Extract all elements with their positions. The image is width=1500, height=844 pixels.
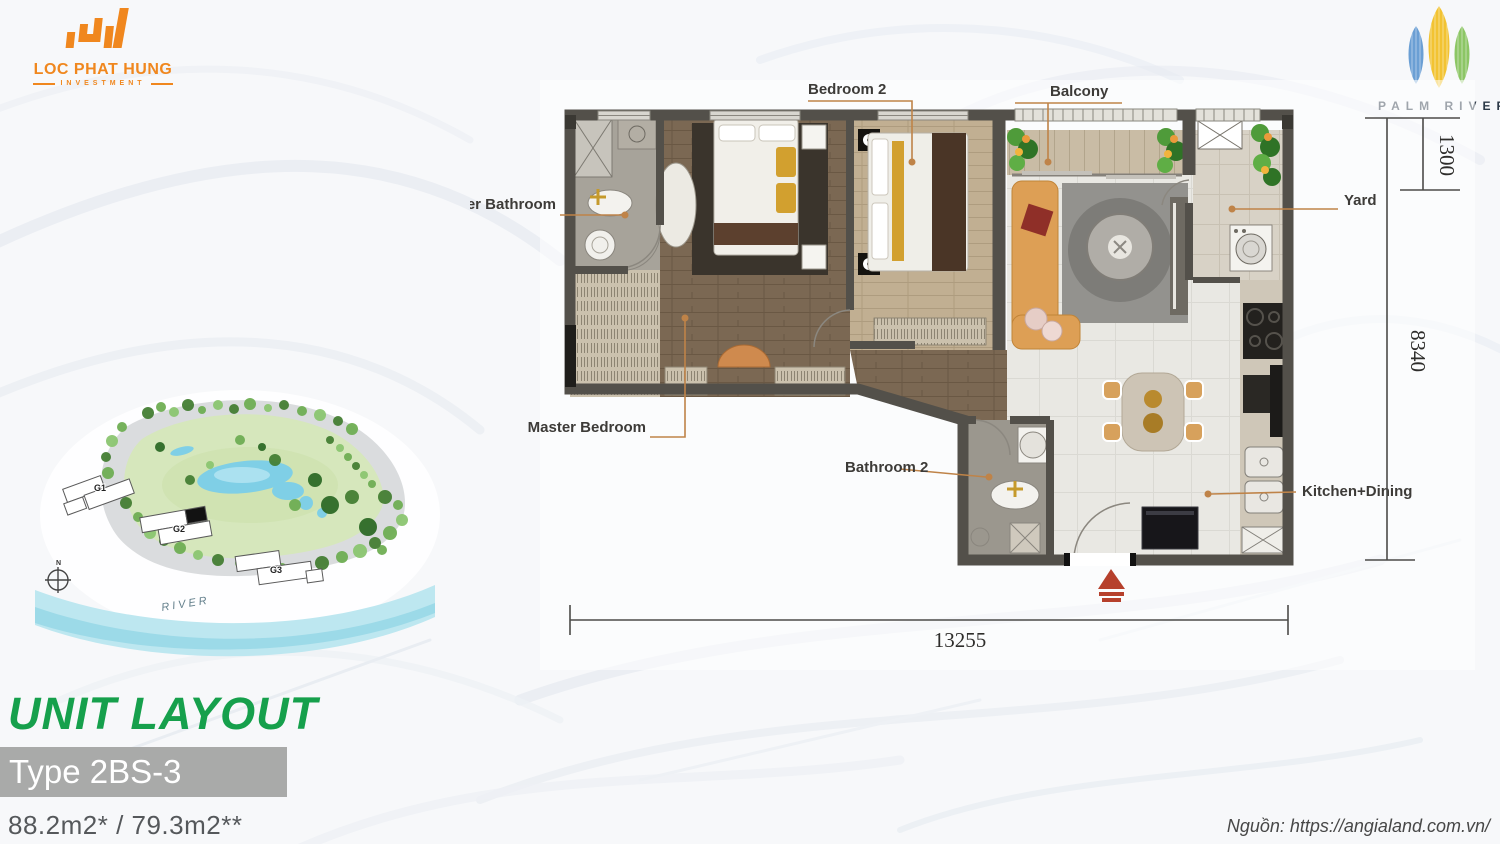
dim-1300: 1300 <box>1435 134 1459 176</box>
label-yard: Yard <box>1344 192 1377 209</box>
dim-13255: 13255 <box>934 628 987 652</box>
label-bathroom2: Bathroom 2 <box>845 459 928 476</box>
building-label-g2: G2 <box>173 524 185 534</box>
label-master-bedroom: Master Bedroom <box>528 419 646 436</box>
label-kitchen-dining: Kitchen+Dining <box>1302 483 1412 500</box>
lph-logo-text: LOC PHAT HUNG <box>28 61 178 79</box>
lph-logo-subtext: INVESTMENT <box>60 80 145 87</box>
floor-plan: Bedroom 2 Balcony Master Bathroom Yard M… <box>470 75 1480 675</box>
label-bedroom2: Bedroom 2 <box>808 81 886 98</box>
lph-dash-left <box>33 83 55 85</box>
lph-dash-right <box>151 83 173 85</box>
unit-areas: 88.2m2* / 79.3m2** <box>8 810 242 841</box>
site-plan-map: G1 G2 G3 RIVER N <box>30 385 445 665</box>
page-title: UNIT LAYOUT <box>8 688 318 740</box>
closet-floor <box>570 270 660 397</box>
lph-logo-mark <box>64 6 142 54</box>
label-master-bathroom: Master Bathroom <box>470 196 556 213</box>
unit-type-bar: Type 2BS-3 <box>0 747 287 797</box>
dim-8340: 8340 <box>1406 330 1430 372</box>
unit-type-label: Type 2BS-3 <box>0 747 287 797</box>
loc-phat-hung-logo: LOC PHAT HUNG INVESTMENT <box>28 6 178 87</box>
compass-n-label: N <box>56 560 61 567</box>
source-credit: Nguồn: https://angialand.com.vn/ <box>1227 816 1490 837</box>
label-balcony: Balcony <box>1050 83 1109 100</box>
building-label-g3: G3 <box>270 565 282 575</box>
building-label-g1: G1 <box>94 483 106 493</box>
